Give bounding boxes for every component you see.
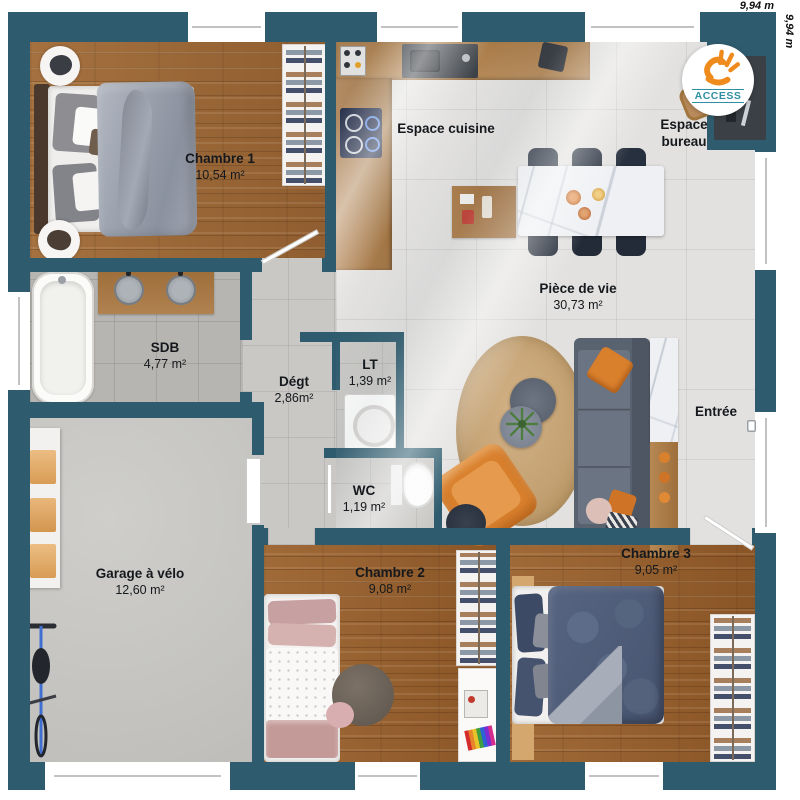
room-name: bureau — [646, 134, 722, 151]
floorplan: Chambre 1 10,54 m² Espace cuisine Espace… — [0, 0, 800, 800]
induction-hob — [340, 108, 382, 158]
label-garage: Garage à vélo 12,60 m² — [65, 566, 215, 599]
label-chambre2: Chambre 2 9,08 m² — [320, 565, 460, 598]
room-area: 12,60 m² — [65, 583, 215, 599]
duvet-fold — [548, 646, 622, 724]
label-lt: LT 1,39 m² — [330, 357, 410, 390]
room-name: SDB — [115, 340, 215, 357]
room-area: 30,73 m² — [508, 298, 648, 314]
room-name: Garage à vélo — [65, 566, 215, 583]
label-chambre1: Chambre 1 10,54 m² — [150, 151, 290, 184]
room-name: WC — [324, 483, 404, 500]
window-cuisine — [377, 12, 462, 42]
label-sdb: SDB 4,77 m² — [115, 340, 215, 373]
room-name: Entrée — [676, 404, 756, 421]
tub-faucet — [58, 276, 66, 284]
label-entree: Entrée — [676, 404, 756, 421]
label-piece-de-vie: Pièce de vie 30,73 m² — [508, 281, 648, 314]
room-area: 1,39 m² — [330, 374, 410, 390]
sink-basin — [410, 50, 440, 72]
wall-sdb-garage — [8, 402, 252, 418]
door-leaf-garage — [246, 458, 261, 524]
storage-box — [30, 498, 56, 532]
entry-door — [755, 412, 776, 533]
kitchen-utensils — [538, 42, 569, 73]
bowl — [566, 190, 581, 205]
label-bureau: Espace bureau — [646, 117, 722, 151]
room-area: 9,05 m² — [588, 563, 724, 579]
sink — [114, 275, 144, 305]
vanity — [98, 266, 214, 314]
entry-door-handle — [747, 420, 756, 432]
window-chambre2 — [355, 762, 420, 790]
room-area: 9,08 m² — [320, 582, 460, 598]
wall-bedrooms-top-left — [264, 528, 268, 545]
bedside-table — [512, 722, 534, 760]
plant — [504, 406, 540, 442]
wall-garage-right-upper — [252, 402, 264, 455]
wall-wc-top — [324, 448, 442, 458]
wall-outer-left — [8, 12, 30, 790]
room-name: Espace cuisine — [378, 121, 514, 138]
window-bureau — [585, 12, 700, 42]
bed-chambre3 — [512, 586, 664, 724]
room-area: 2,86m² — [250, 391, 338, 407]
window-sejour — [755, 152, 776, 270]
stove — [340, 46, 366, 76]
room-area: 4,77 m² — [115, 357, 215, 373]
window-chambre1 — [188, 12, 265, 42]
access-logo: ACCESS — [682, 44, 754, 116]
window-chambre3 — [585, 762, 663, 790]
window-sdb — [8, 292, 30, 390]
room-name: Chambre 2 — [320, 565, 460, 582]
cushion-pink — [326, 702, 354, 728]
bowl — [578, 207, 591, 220]
room-name: Dégt — [250, 374, 338, 391]
sofa-backrest — [632, 338, 650, 536]
room-name: Pièce de vie — [508, 281, 648, 298]
label-degt: Dégt 2,86m² — [250, 374, 338, 407]
storage-box — [30, 450, 56, 484]
room-name: Chambre 3 — [588, 546, 724, 563]
ok-hand-icon — [696, 48, 740, 88]
dining-table — [518, 166, 664, 236]
garage-door — [45, 762, 230, 790]
label-cuisine: Espace cuisine — [378, 121, 514, 138]
bathtub — [32, 272, 94, 404]
kitchen-cabinet-left — [336, 78, 392, 270]
door-threshold-chambre2 — [268, 528, 315, 545]
wall-chambre1-bottom — [8, 258, 262, 272]
room-area: 10,54 m² — [150, 168, 290, 184]
desk-chambre2 — [458, 668, 500, 762]
bowl — [592, 188, 605, 201]
bed-chambre2 — [264, 594, 340, 762]
dimension-right: 9,94 m — [783, 14, 795, 48]
sink — [166, 275, 196, 305]
washing-machine — [344, 394, 396, 450]
colored-pencils — [464, 725, 496, 750]
wall-garage-right-lower — [252, 525, 264, 766]
wall-wc-right — [434, 448, 442, 530]
blanket-pink — [266, 720, 338, 758]
wall-lt-right — [396, 332, 404, 456]
wardrobe-chambre3 — [710, 614, 755, 762]
room-name: Espace — [646, 117, 722, 134]
pillow-pink — [268, 599, 337, 625]
label-wc: WC 1,19 m² — [324, 483, 404, 516]
console-table — [452, 186, 516, 238]
wall-chambre1-right — [325, 42, 336, 264]
room-name: Chambre 1 — [150, 151, 290, 168]
wardrobe-chambre2 — [456, 550, 500, 666]
pillow-pink — [268, 623, 337, 647]
wall-lt-top — [300, 332, 404, 342]
sewing-machine — [464, 690, 488, 718]
console-behind-sofa — [650, 338, 678, 442]
faucet — [462, 54, 470, 62]
room-name: LT — [330, 357, 410, 374]
label-chambre3: Chambre 3 9,05 m² — [588, 546, 724, 579]
storage-box — [30, 544, 56, 578]
dimension-top: 9,94 m — [700, 0, 774, 12]
wall-chambre1-bottom2 — [322, 258, 336, 272]
access-logo-text: ACCESS — [692, 89, 744, 103]
wall-bedrooms-top — [315, 528, 690, 545]
wall-sdb-right-upper — [240, 258, 252, 340]
kitchen-sink-counter — [402, 44, 478, 78]
room-area: 1,19 m² — [324, 500, 404, 516]
wall-chambre2-chambre3 — [496, 545, 510, 765]
